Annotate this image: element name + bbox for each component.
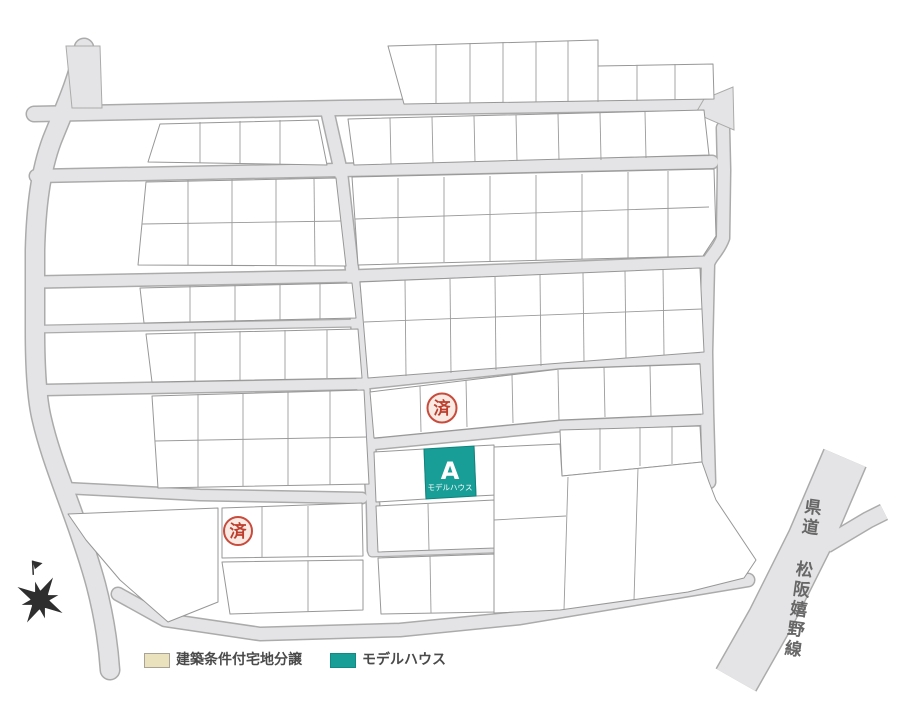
legend-item-conditional-lot: 建築条件付宅地分譲 xyxy=(144,653,302,668)
model-house-lot-sublabel: モデルハウス xyxy=(428,482,473,492)
site-plan-map: A モデルハウス 済 済 県道 松阪嬉野線 建築条件付宅地分譲 xyxy=(0,0,900,719)
legend-item-model-house: モデルハウス xyxy=(330,653,446,668)
model-house-label: モデルハウス xyxy=(362,653,446,668)
sold-stamp-2: 済 xyxy=(224,517,252,545)
sold-stamp-text: 済 xyxy=(434,398,452,419)
model-house-lot: A モデルハウス xyxy=(424,446,476,499)
sold-stamp-1: 済 xyxy=(428,394,457,423)
conditional-lot-swatch xyxy=(144,653,170,668)
compass-rose-icon xyxy=(0,552,85,645)
road-entry-stub xyxy=(66,46,102,108)
model-house-lot-letter: A xyxy=(441,457,460,485)
subdivision-plat-drawing: A モデルハウス 済 済 xyxy=(0,0,900,719)
conditional-lot-label: 建築条件付宅地分譲 xyxy=(176,653,302,668)
sold-stamp-text: 済 xyxy=(230,521,248,542)
model-house-swatch xyxy=(330,653,356,668)
legend: 建築条件付宅地分譲 モデルハウス xyxy=(144,653,446,668)
